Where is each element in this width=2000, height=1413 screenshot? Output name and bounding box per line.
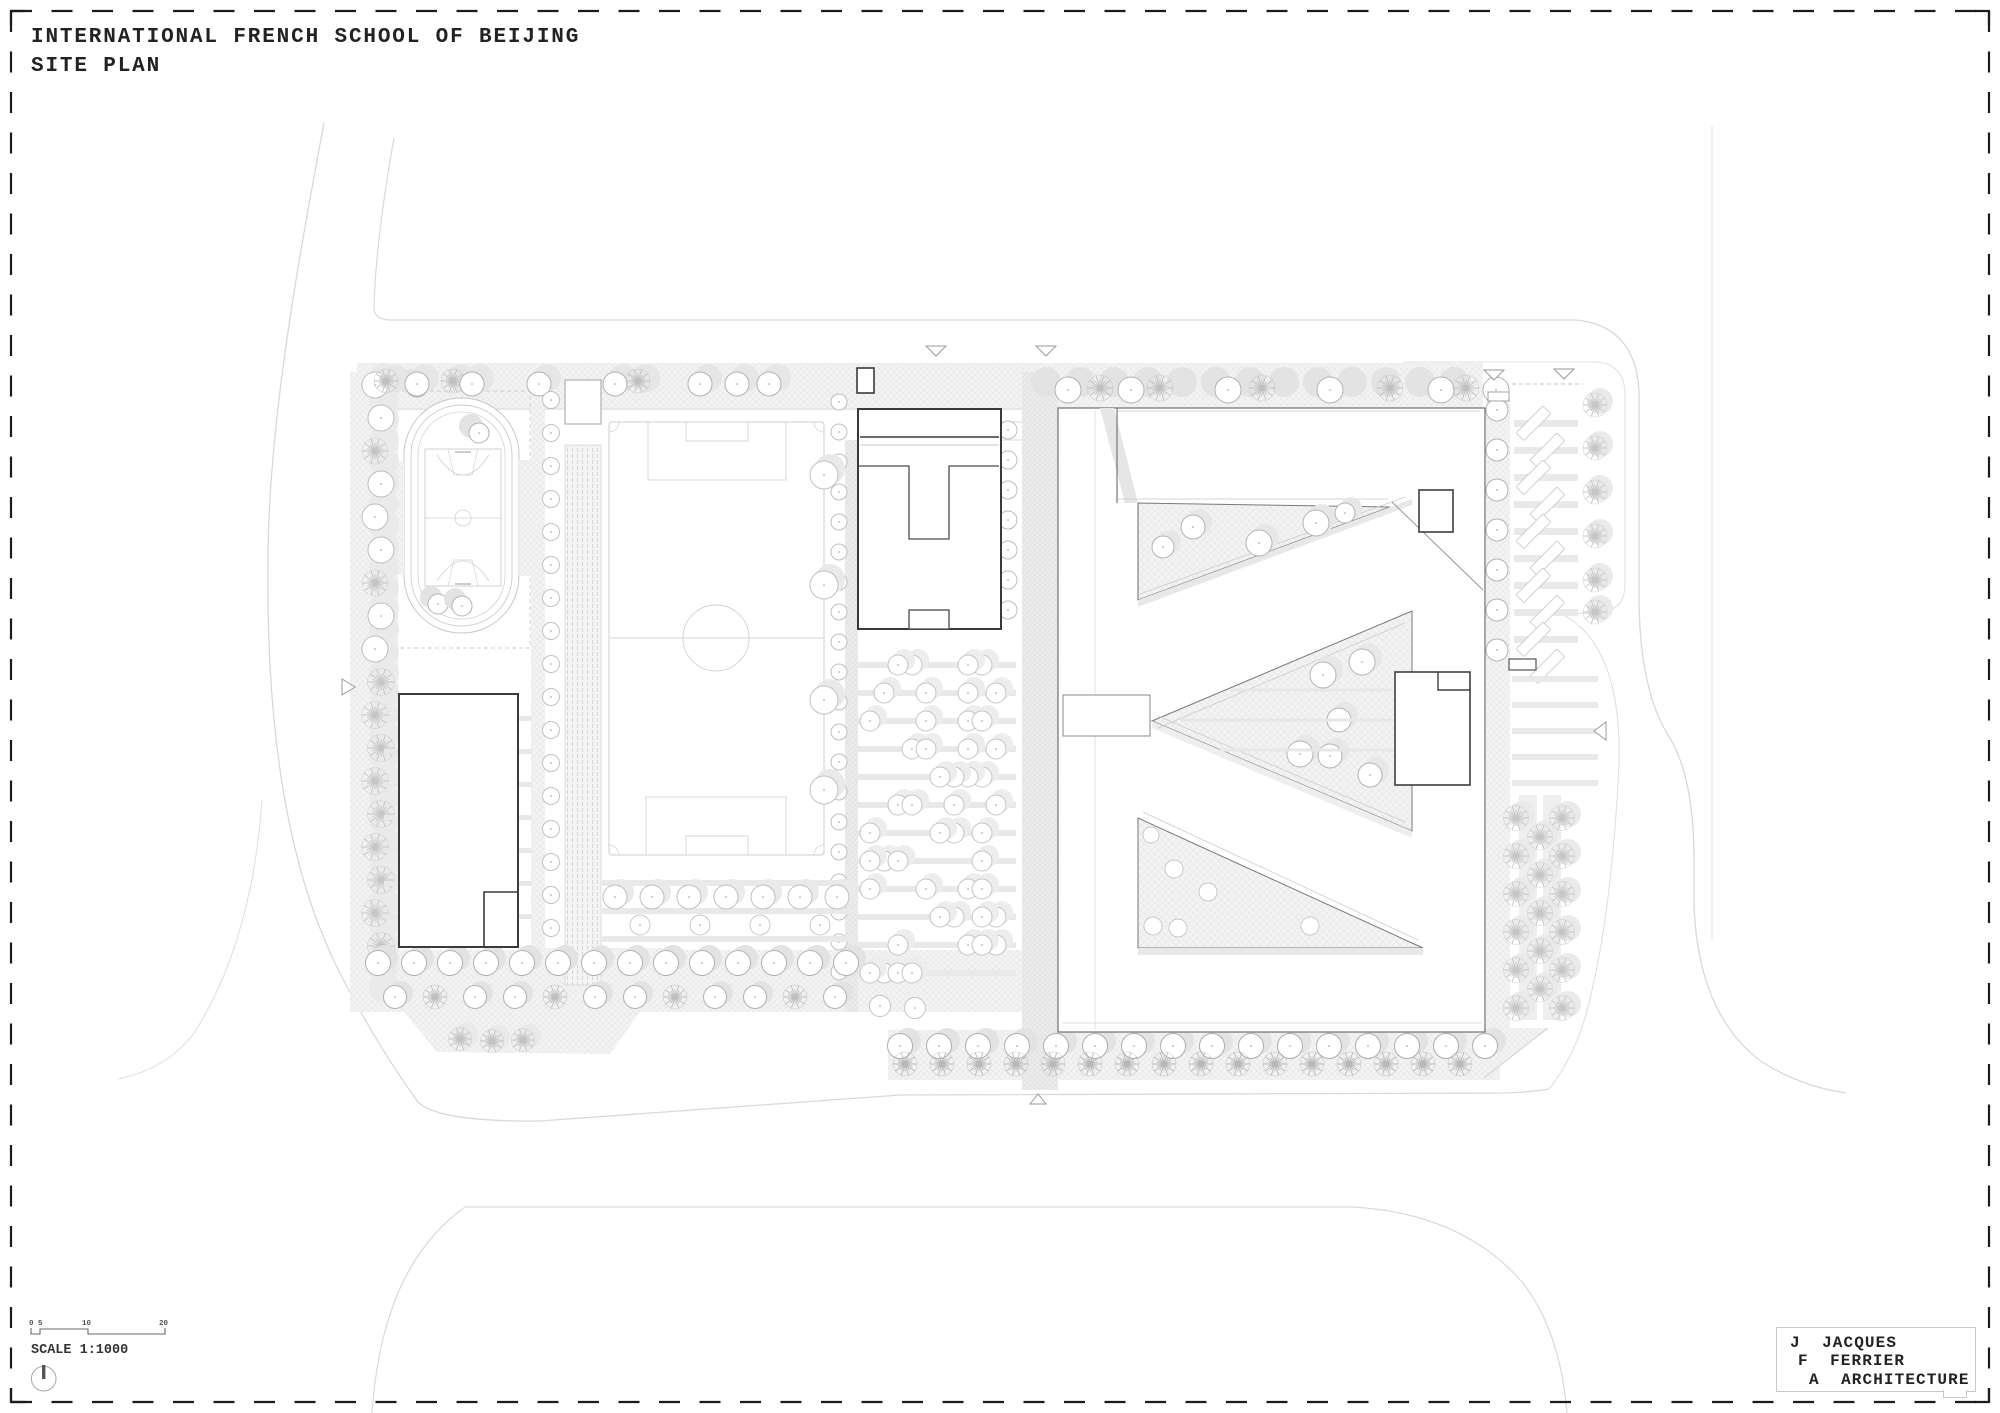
svg-text:10: 10 [82,1320,92,1328]
svg-text:0: 0 [29,1320,34,1328]
svg-text:20: 20 [159,1320,169,1328]
svg-text:5: 5 [38,1320,43,1328]
